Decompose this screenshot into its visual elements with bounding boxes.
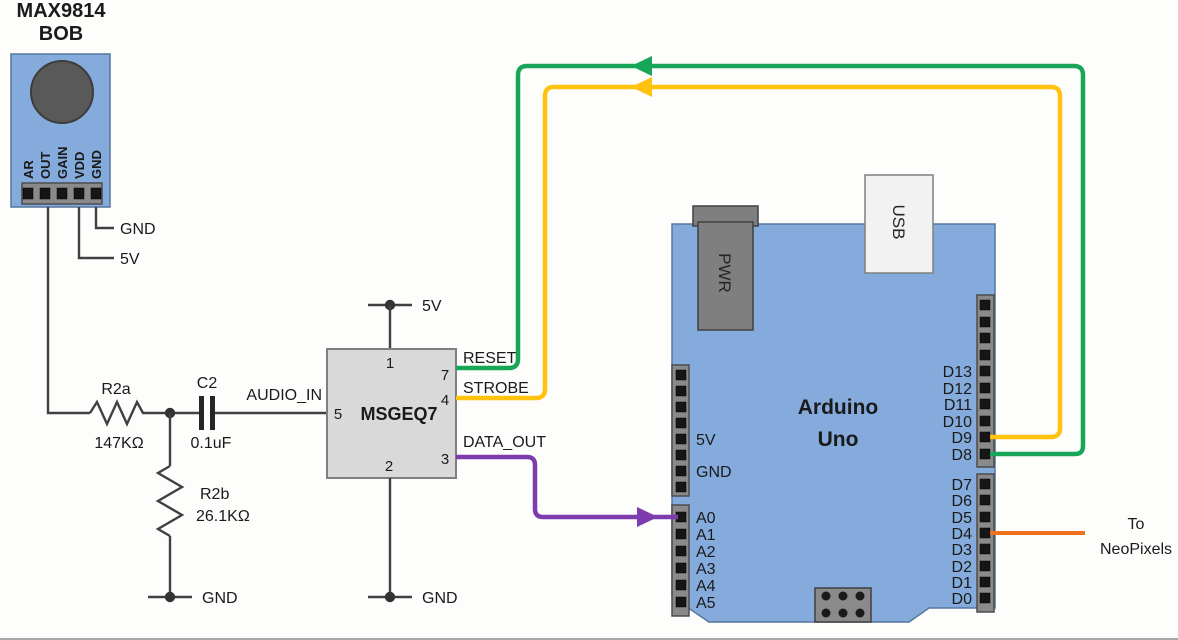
neopixels-label-line2: NeoPixels: [1100, 541, 1172, 558]
arduino-title-line2: Uno: [818, 428, 859, 451]
resistor-r2a: [90, 402, 148, 424]
mic-pin-label-out: OUT: [38, 152, 53, 180]
pin-label-d8: D8: [952, 447, 973, 464]
pin-label-a1: A1: [696, 527, 716, 544]
pin: [980, 561, 990, 571]
pin: [40, 188, 50, 199]
wire-data-out: [456, 457, 678, 517]
pin: [980, 544, 990, 554]
microphone-icon: [31, 61, 93, 123]
arrow-left-icon: [631, 56, 652, 76]
pin-label-a3: A3: [696, 561, 716, 578]
capacitor-c2: [210, 396, 215, 430]
pin-label-d5: D5: [952, 510, 973, 527]
msgeq7-5v-label: 5V: [422, 298, 442, 315]
mic-out-wire: [48, 207, 90, 413]
c2-name-label: C2: [197, 375, 218, 392]
strobe-signal-label: STROBE: [463, 380, 529, 397]
pin: [676, 402, 686, 412]
icsp-pin: [839, 609, 848, 618]
pin-label-d2: D2: [952, 559, 973, 576]
mic-module-title-line1: MAX9814: [17, 0, 107, 22]
msgeq7-gnd-label: GND: [422, 590, 458, 607]
pin-label-d11: D11: [944, 397, 972, 414]
pin: [980, 333, 990, 343]
pin-label-d3: D3: [952, 542, 973, 559]
pin: [23, 188, 33, 199]
pin: [980, 593, 990, 603]
pin-label-gnd: GND: [696, 464, 732, 481]
wiring-diagram: MAX9814 BOB AR OUT GAIN VDD GND GND 5V R…: [0, 0, 1178, 636]
mic-pin-label-gain: GAIN: [55, 147, 70, 180]
junction-dot: [385, 592, 395, 602]
pin: [676, 580, 686, 590]
pin: [980, 512, 990, 522]
r2b-value-label: 26.1KΩ: [196, 508, 250, 525]
pin: [676, 386, 686, 396]
msgeq7-pin2: 2: [385, 458, 393, 475]
pin: [676, 434, 686, 444]
pin: [676, 482, 686, 492]
pin: [676, 418, 686, 428]
power-pin-header: [672, 365, 689, 496]
icsp-pin: [822, 592, 831, 601]
msgeq7-pin5: 5: [334, 406, 342, 423]
pin: [980, 449, 990, 459]
input-filter: R2a 147KΩ C2 0.1uF AUDIO_IN R2b 26.1KΩ G…: [48, 207, 327, 607]
pin: [980, 300, 990, 310]
arduino-title-line1: Arduino: [798, 396, 878, 419]
digital-lower-pin-header: [977, 474, 994, 612]
pin: [676, 466, 686, 476]
reset-signal-label: RESET: [463, 350, 517, 367]
pin: [980, 495, 990, 505]
pin-label-d6: D6: [952, 493, 973, 510]
msgeq7-pin4: 4: [441, 392, 449, 409]
pin: [57, 188, 67, 199]
pin-label-d10: D10: [943, 414, 972, 431]
pin-label-d12: D12: [943, 381, 972, 398]
pin-label-d0: D0: [952, 591, 973, 608]
msgeq7-section: 5V 1 7 4 5 3 2 MSGEQ7 GND RESET STROBE D…: [327, 298, 546, 607]
pin: [980, 432, 990, 442]
pin-label-a5: A5: [696, 595, 716, 612]
r2a-name-label: R2a: [101, 381, 130, 398]
pin-label-d9: D9: [952, 430, 973, 447]
pin-label-a4: A4: [696, 578, 716, 595]
pin: [676, 370, 686, 380]
mic-module-title-line2: BOB: [39, 23, 83, 45]
arduino-board: PWR USB Arduino Uno 5V GND A0 A1 A2 A3 A…: [672, 175, 995, 622]
icsp-pin: [856, 609, 865, 618]
pin-label-d4: D4: [952, 526, 973, 543]
usb-label: USB: [889, 205, 908, 240]
msgeq7-pin1: 1: [386, 355, 394, 372]
msgeq7-pin7: 7: [441, 367, 449, 384]
schematic-canvas: MAX9814 BOB AR OUT GAIN VDD GND GND 5V R…: [0, 0, 1178, 640]
pin: [91, 188, 101, 199]
pin: [676, 450, 686, 460]
junction-dot: [165, 592, 175, 602]
pin-label-a2: A2: [696, 544, 716, 561]
c2-value-label: 0.1uF: [191, 435, 232, 452]
data-out-signal-label: DATA_OUT: [463, 434, 546, 451]
pin: [980, 528, 990, 538]
pin-label-5v: 5V: [696, 432, 716, 449]
pin: [980, 479, 990, 489]
pin: [980, 366, 990, 376]
msgeq7-pin3: 3: [441, 451, 449, 468]
pin: [980, 383, 990, 393]
neopixels-label-line1: To: [1128, 516, 1145, 533]
icsp-pin: [856, 592, 865, 601]
r2a-value-label: 147KΩ: [94, 435, 143, 452]
resistor-r2b: [158, 466, 182, 536]
icsp-pin: [822, 609, 831, 618]
capacitor-c2: [199, 396, 204, 430]
arrow-left-icon: [631, 77, 652, 97]
pin: [980, 399, 990, 409]
r2b-name-label: R2b: [200, 486, 229, 503]
mic-pin-label-ar: AR: [21, 160, 36, 179]
mic-pin-label-vdd: VDD: [72, 152, 87, 179]
mic-module: MAX9814 BOB AR OUT GAIN VDD GND GND 5V: [11, 0, 156, 268]
pin: [676, 563, 686, 573]
arrow-right-icon: [637, 507, 658, 527]
mic-5v-wire-label: 5V: [120, 251, 140, 268]
pin-label-a0: A0: [696, 510, 716, 527]
filter-gnd-label: GND: [202, 590, 238, 607]
mic-gnd-wire: [96, 207, 114, 228]
neopixels-label: To NeoPixels: [1100, 516, 1172, 558]
pin-label-d1: D1: [952, 575, 973, 592]
mic-gnd-wire-label: GND: [120, 221, 156, 238]
msgeq7-chip-name: MSGEQ7: [360, 404, 437, 424]
pin: [676, 597, 686, 607]
pin-label-d7: D7: [952, 477, 973, 494]
pin: [676, 529, 686, 539]
pin: [676, 546, 686, 556]
pin: [74, 188, 84, 199]
audio-in-label: AUDIO_IN: [246, 387, 322, 404]
pin: [980, 577, 990, 587]
mic-pin-label-gnd: GND: [89, 150, 104, 179]
pin-label-d13: D13: [943, 364, 972, 381]
pin: [980, 317, 990, 327]
icsp-pin: [839, 592, 848, 601]
pin: [980, 416, 990, 426]
pin: [980, 350, 990, 360]
pwr-label: PWR: [715, 253, 734, 293]
